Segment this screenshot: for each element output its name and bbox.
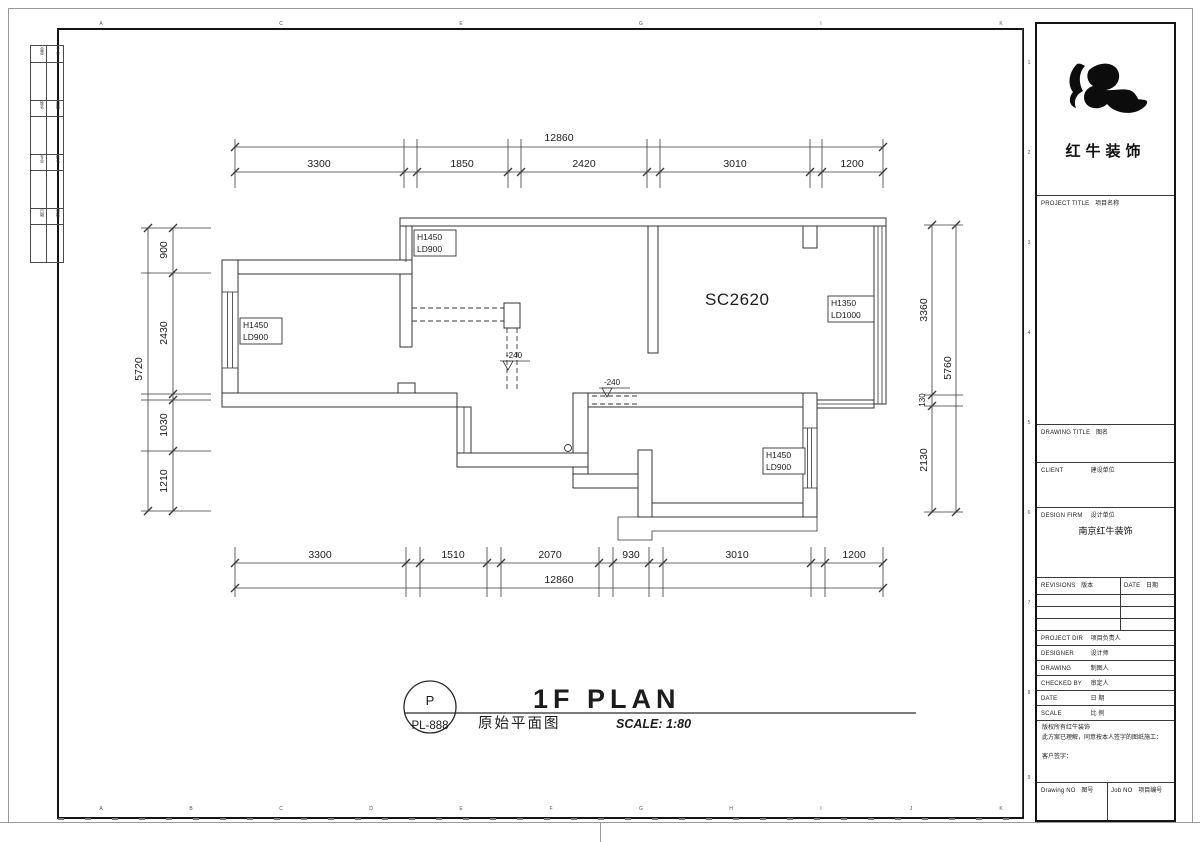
- field-label-en: DESIGN FIRM: [1041, 513, 1085, 519]
- copyright-block: 版权所有红牛装饰 此方案已理解，同意按本人签字的图纸施工： 客户签字：: [1042, 723, 1168, 762]
- grid-letter: C: [275, 21, 287, 27]
- grid-number: 9: [1024, 775, 1034, 781]
- field-client: CLIENT 建设单位: [1041, 465, 1115, 474]
- grid-letter: J: [905, 806, 917, 812]
- grid-number: 2: [1024, 150, 1034, 156]
- field-checked-by: CHECKED BY 审定人: [1041, 678, 1109, 687]
- field-label-en: DATE: [1124, 583, 1140, 589]
- field-label-en: PROJECT TITLE: [1041, 201, 1089, 207]
- field-label-en: DRAWING: [1041, 666, 1085, 672]
- grid-letter: G: [635, 806, 647, 812]
- field-design-firm: DESIGN FIRM 设计单位: [1041, 510, 1115, 519]
- field-label-cn: 图号: [1081, 788, 1093, 794]
- field-label-cn: 图名: [1096, 430, 1108, 436]
- grid-number: 6: [1024, 510, 1034, 516]
- grid-number: 7: [1024, 600, 1034, 606]
- grid-letter: B: [185, 806, 197, 812]
- grid-number: 4: [1024, 330, 1034, 336]
- grid-letter: E: [455, 806, 467, 812]
- grid-tick-row: [58, 818, 1020, 820]
- field-label-en: PROJECT DIR: [1041, 636, 1085, 642]
- grid-number: 5: [1024, 420, 1034, 426]
- field-job-no: Job NO 项目编号: [1111, 785, 1162, 794]
- field-label-cn: 比 例: [1091, 711, 1105, 717]
- title-block: 红牛装饰 PROJECT TITLE 项目名称 DRAWING TITLE 图名…: [1035, 22, 1176, 822]
- field-label-cn: 日 期: [1091, 696, 1105, 702]
- field-label-cn: 项目负责人: [1091, 636, 1121, 642]
- sign-cell: 姓名: [47, 155, 61, 163]
- field-label-cn: 版本: [1081, 583, 1093, 589]
- company-logo-icon: [1059, 58, 1151, 132]
- grid-letter: I: [815, 21, 827, 27]
- signature-strip: 会签 专业 姓名 日期 专业 姓名 日期 审核: [30, 45, 64, 263]
- grid-letter: K: [995, 806, 1007, 812]
- grid-number: 8: [1024, 690, 1034, 696]
- field-label-en: DATE: [1041, 696, 1085, 702]
- field-label-cn: 建设单位: [1091, 468, 1115, 474]
- grid-letter: C: [275, 806, 287, 812]
- field-project-dir: PROJECT DIR 项目负责人: [1041, 633, 1121, 642]
- field-label-en: SCALE: [1041, 711, 1085, 717]
- field-label-en: Job NO: [1111, 788, 1133, 794]
- field-label-cn: 设计单位: [1091, 513, 1115, 519]
- field-drawing-by: DRAWING 制图人: [1041, 663, 1109, 672]
- sign-cell: 日期: [47, 101, 61, 109]
- grid-letter: I: [815, 806, 827, 812]
- grid-letter: A: [95, 806, 107, 812]
- frame-right-rule: [1022, 28, 1023, 817]
- field-label-en: DESIGNER: [1041, 651, 1085, 657]
- grid-letter: H: [725, 806, 737, 812]
- drawing-frame: [57, 28, 1024, 819]
- field-label-cn: 日期: [1146, 583, 1158, 589]
- field-rev-date: DATE 日期: [1124, 580, 1158, 589]
- drawing-sheet: { "sheet": { "grid_letters": ["A","B","C…: [0, 0, 1200, 842]
- copyright-line: 此方案已理解，同意按本人签字的图纸施工：: [1042, 733, 1168, 743]
- sign-cell: 审核: [47, 209, 61, 217]
- field-date: DATE 日 期: [1041, 693, 1104, 702]
- field-label-cn: 项目编号: [1138, 788, 1162, 794]
- sign-cell: 会签: [31, 47, 45, 55]
- field-revisions: REVISIONS 版本: [1041, 580, 1093, 589]
- copyright-line: 版权所有红牛装饰: [1042, 723, 1168, 733]
- sign-cell: 日期: [31, 209, 45, 217]
- grid-letter: G: [635, 21, 647, 27]
- field-label-cn: 审定人: [1091, 681, 1109, 687]
- grid-letter: A: [95, 21, 107, 27]
- field-scale: SCALE 比 例: [1041, 708, 1104, 717]
- field-project-title: PROJECT TITLE 项目名称: [1041, 198, 1119, 207]
- field-drawing-title: DRAWING TITLE 图名: [1041, 427, 1108, 436]
- sign-cell: 专业: [31, 155, 45, 163]
- design-firm-value: 南京红牛装饰: [1037, 524, 1174, 537]
- field-drawing-no: Drawing NO 图号: [1041, 785, 1093, 794]
- field-label-cn: 项目名称: [1095, 201, 1119, 207]
- grid-number: 3: [1024, 240, 1034, 246]
- field-label-en: REVISIONS: [1041, 583, 1075, 589]
- fold-mark: [600, 822, 601, 842]
- field-label-en: DRAWING TITLE: [1041, 430, 1090, 436]
- sign-cell: 专业: [47, 47, 61, 55]
- grid-number: 1: [1024, 60, 1034, 66]
- grid-letter: K: [995, 21, 1007, 27]
- field-label-cn: 制图人: [1091, 666, 1109, 672]
- grid-letter: F: [545, 806, 557, 812]
- field-label-en: CLIENT: [1041, 468, 1085, 474]
- grid-letter: E: [455, 21, 467, 27]
- field-label-cn: 设计师: [1091, 651, 1109, 657]
- sign-cell: 姓名: [31, 101, 45, 109]
- company-name: 红牛装饰: [1037, 140, 1174, 161]
- field-designer: DESIGNER 设计师: [1041, 648, 1109, 657]
- client-signature-line: 客户签字：: [1042, 752, 1168, 762]
- field-label-en: CHECKED BY: [1041, 681, 1085, 687]
- field-label-en: Drawing NO: [1041, 788, 1076, 794]
- grid-letter: D: [365, 806, 377, 812]
